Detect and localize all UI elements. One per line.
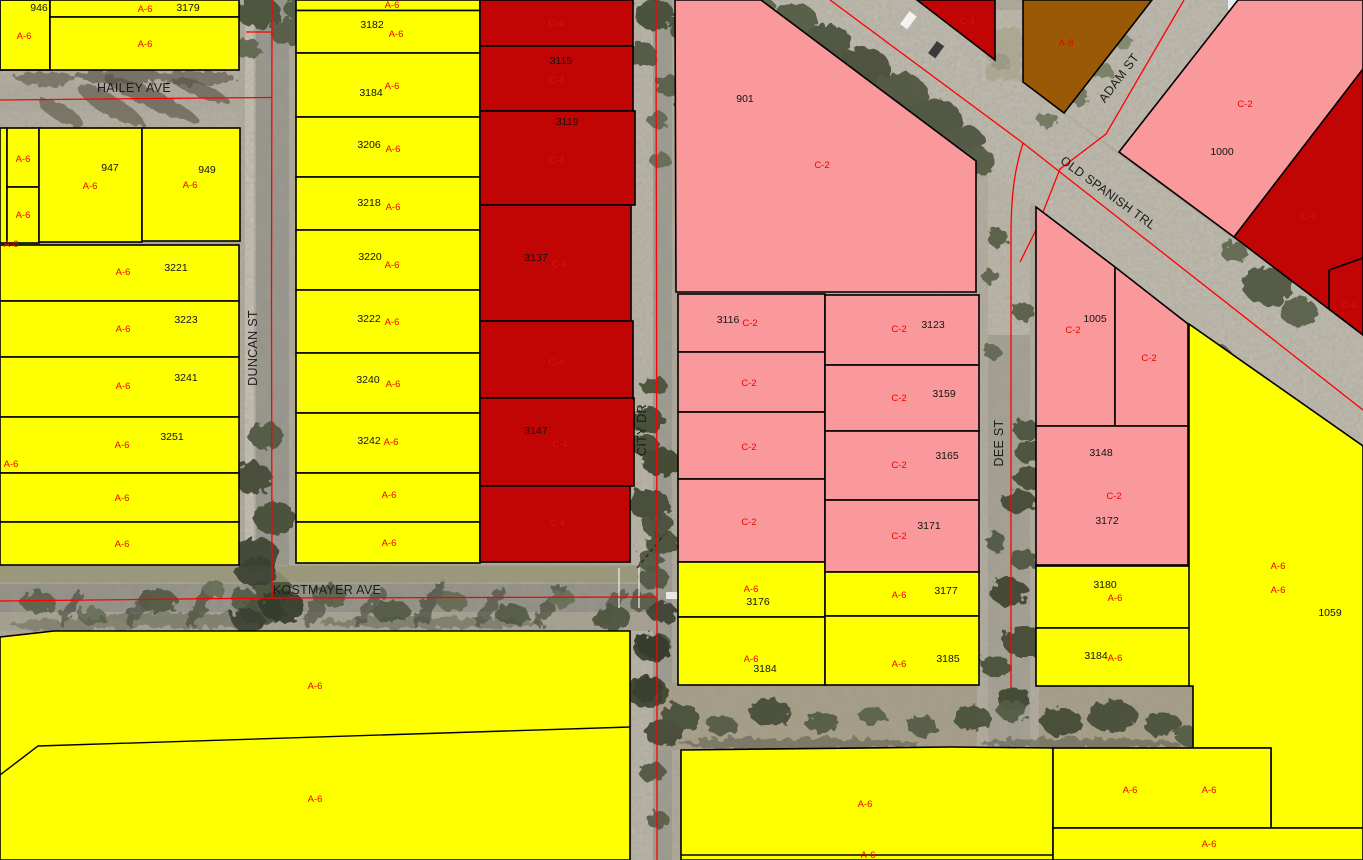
svg-text:A-6: A-6 bbox=[4, 459, 19, 470]
svg-text:A-6: A-6 bbox=[744, 584, 759, 595]
svg-text:3148: 3148 bbox=[1089, 447, 1113, 459]
svg-text:A-6: A-6 bbox=[115, 539, 130, 550]
svg-text:A-6: A-6 bbox=[1202, 785, 1217, 796]
svg-text:A-6: A-6 bbox=[83, 181, 98, 192]
svg-text:3185: 3185 bbox=[936, 653, 960, 665]
svg-text:C-2: C-2 bbox=[891, 324, 906, 335]
svg-text:947: 947 bbox=[101, 162, 119, 174]
svg-text:A-6: A-6 bbox=[1123, 785, 1138, 796]
svg-text:3222: 3222 bbox=[357, 313, 381, 325]
svg-text:3165: 3165 bbox=[935, 450, 959, 462]
svg-text:A-6: A-6 bbox=[386, 202, 401, 213]
svg-text:A-6: A-6 bbox=[386, 379, 401, 390]
svg-text:A-6: A-6 bbox=[16, 154, 31, 165]
svg-text:A-6: A-6 bbox=[1108, 653, 1123, 664]
svg-text:HAILEY AVE: HAILEY AVE bbox=[97, 81, 171, 95]
svg-text:C-4: C-4 bbox=[1300, 211, 1315, 222]
svg-text:C-2: C-2 bbox=[891, 531, 906, 542]
svg-text:CITY DR: CITY DR bbox=[635, 404, 649, 456]
svg-text:DEE ST: DEE ST bbox=[992, 419, 1006, 466]
svg-text:KOSTMAYER AVE: KOSTMAYER AVE bbox=[273, 583, 381, 597]
svg-text:949: 949 bbox=[198, 164, 216, 176]
svg-text:A-6: A-6 bbox=[382, 538, 397, 549]
svg-text:C-4: C-4 bbox=[549, 75, 564, 86]
svg-text:C-2: C-2 bbox=[1141, 353, 1156, 364]
svg-text:C-4: C-4 bbox=[1341, 300, 1356, 311]
svg-text:A-6: A-6 bbox=[385, 260, 400, 271]
svg-text:3119: 3119 bbox=[556, 116, 579, 128]
svg-text:A-6: A-6 bbox=[116, 324, 131, 335]
svg-text:A-6: A-6 bbox=[116, 381, 131, 392]
svg-text:C-2: C-2 bbox=[814, 160, 829, 171]
svg-text:3251: 3251 bbox=[160, 431, 184, 443]
svg-text:C-2: C-2 bbox=[1065, 325, 1080, 336]
svg-text:A-6: A-6 bbox=[115, 440, 130, 451]
svg-text:A-6: A-6 bbox=[892, 590, 907, 601]
svg-text:3220: 3220 bbox=[358, 251, 382, 263]
svg-text:C-2: C-2 bbox=[891, 393, 906, 404]
svg-text:A-6: A-6 bbox=[138, 4, 153, 15]
svg-text:A-6: A-6 bbox=[892, 659, 907, 670]
svg-text:3116: 3116 bbox=[717, 314, 740, 326]
svg-text:C-4: C-4 bbox=[552, 439, 567, 450]
svg-text:A-8: A-8 bbox=[1059, 38, 1074, 49]
svg-text:A-6: A-6 bbox=[183, 180, 198, 191]
svg-text:3184: 3184 bbox=[1084, 650, 1108, 662]
svg-text:C-4: C-4 bbox=[959, 16, 974, 27]
svg-text:3172: 3172 bbox=[1095, 515, 1119, 527]
svg-text:A-6: A-6 bbox=[385, 81, 400, 92]
svg-text:3137: 3137 bbox=[524, 252, 548, 264]
svg-text:A-6: A-6 bbox=[861, 850, 876, 860]
svg-text:A-6: A-6 bbox=[858, 799, 873, 810]
svg-text:A-6: A-6 bbox=[385, 317, 400, 328]
svg-text:3206: 3206 bbox=[357, 139, 381, 151]
svg-text:3147: 3147 bbox=[524, 425, 548, 437]
svg-text:C-2: C-2 bbox=[1106, 491, 1121, 502]
svg-text:A-6: A-6 bbox=[385, 0, 400, 11]
svg-text:A-6: A-6 bbox=[16, 210, 31, 221]
svg-text:A-6: A-6 bbox=[389, 29, 404, 40]
svg-text:3184: 3184 bbox=[359, 87, 383, 99]
svg-text:3176: 3176 bbox=[746, 596, 770, 608]
svg-text:C-4: C-4 bbox=[548, 357, 563, 368]
svg-text:A-6: A-6 bbox=[1271, 561, 1286, 572]
svg-text:A-6: A-6 bbox=[17, 31, 32, 42]
svg-text:C-2: C-2 bbox=[1237, 99, 1252, 110]
svg-text:A-6: A-6 bbox=[138, 39, 153, 50]
svg-text:C-2: C-2 bbox=[741, 378, 756, 389]
svg-text:A-6: A-6 bbox=[1108, 593, 1123, 604]
svg-text:3221: 3221 bbox=[164, 262, 188, 274]
svg-text:A-6: A-6 bbox=[1202, 839, 1217, 850]
svg-text:946: 946 bbox=[30, 2, 48, 14]
svg-text:3180: 3180 bbox=[1093, 579, 1117, 591]
svg-text:C-2: C-2 bbox=[741, 442, 756, 453]
svg-text:A-6: A-6 bbox=[744, 654, 759, 665]
svg-text:3171: 3171 bbox=[917, 520, 941, 532]
svg-text:A-6: A-6 bbox=[4, 239, 19, 250]
svg-text:A-6: A-6 bbox=[1271, 585, 1286, 596]
svg-text:3240: 3240 bbox=[356, 374, 380, 386]
svg-text:3242: 3242 bbox=[357, 435, 381, 447]
svg-text:C-2: C-2 bbox=[891, 460, 906, 471]
svg-text:1005: 1005 bbox=[1083, 313, 1107, 325]
svg-text:3241: 3241 bbox=[174, 372, 198, 384]
svg-text:3177: 3177 bbox=[934, 585, 958, 597]
svg-text:3223: 3223 bbox=[174, 314, 198, 326]
svg-text:3159: 3159 bbox=[932, 388, 956, 400]
svg-text:C-4: C-4 bbox=[549, 155, 564, 166]
svg-text:3218: 3218 bbox=[357, 197, 381, 209]
svg-text:C-4: C-4 bbox=[549, 518, 564, 529]
svg-text:C-2: C-2 bbox=[741, 517, 756, 528]
svg-text:DUNCAN ST: DUNCAN ST bbox=[246, 310, 260, 386]
svg-text:A-6: A-6 bbox=[386, 144, 401, 155]
svg-text:3179: 3179 bbox=[176, 2, 200, 14]
svg-text:A-6: A-6 bbox=[115, 493, 130, 504]
svg-text:A-6: A-6 bbox=[308, 681, 323, 692]
svg-text:3123: 3123 bbox=[921, 319, 945, 331]
svg-text:901: 901 bbox=[736, 93, 754, 105]
svg-text:A-6: A-6 bbox=[382, 490, 397, 501]
svg-text:C-2: C-2 bbox=[742, 318, 757, 329]
svg-text:3115: 3115 bbox=[550, 55, 573, 67]
svg-text:1059: 1059 bbox=[1318, 607, 1342, 619]
svg-text:A-6: A-6 bbox=[116, 267, 131, 278]
svg-text:1000: 1000 bbox=[1210, 146, 1234, 158]
svg-text:A-6: A-6 bbox=[384, 437, 399, 448]
svg-text:A-6: A-6 bbox=[308, 794, 323, 805]
svg-text:C-4: C-4 bbox=[551, 259, 566, 270]
svg-text:3182: 3182 bbox=[360, 19, 384, 31]
svg-text:C-4: C-4 bbox=[548, 18, 563, 29]
